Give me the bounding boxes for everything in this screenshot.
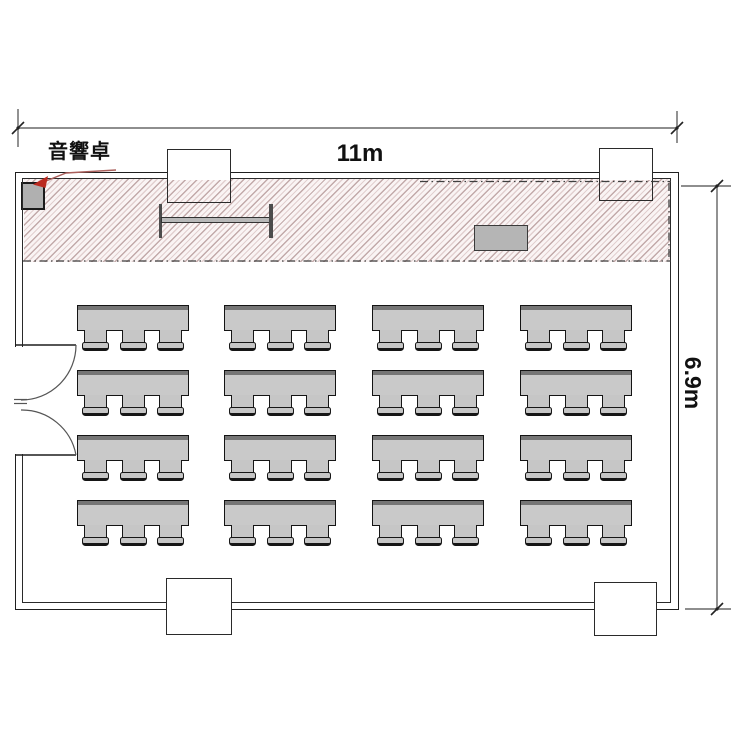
chair-seat — [602, 395, 625, 408]
chair-back — [600, 472, 627, 481]
seating-table — [372, 370, 484, 416]
chair — [157, 525, 184, 546]
chair-back — [120, 342, 147, 351]
chair — [304, 525, 331, 546]
chair-back — [304, 472, 331, 481]
chair — [600, 460, 627, 481]
chair-back — [377, 537, 404, 546]
chair — [82, 395, 109, 416]
chair-seat — [159, 460, 182, 473]
table-top — [224, 500, 336, 526]
table-top — [520, 435, 632, 461]
chair — [157, 330, 184, 351]
chair — [377, 525, 404, 546]
chair-seat — [122, 460, 145, 473]
chair-back — [525, 537, 552, 546]
chair-seat — [379, 525, 402, 538]
table-edge — [521, 371, 631, 375]
chair-back — [304, 342, 331, 351]
table-edge — [521, 501, 631, 505]
chair-seat — [417, 395, 440, 408]
chair-seat — [84, 525, 107, 538]
chair — [267, 395, 294, 416]
chair-back — [120, 472, 147, 481]
chair-seat — [269, 460, 292, 473]
chair — [267, 330, 294, 351]
seating-table — [224, 305, 336, 351]
chair-seat — [565, 395, 588, 408]
chair-seat — [231, 525, 254, 538]
chair-seat — [527, 330, 550, 343]
chair-seat — [454, 460, 477, 473]
chair-back — [157, 342, 184, 351]
chair-seat — [84, 330, 107, 343]
chair-seat — [527, 460, 550, 473]
chair-seat — [231, 460, 254, 473]
chair — [377, 395, 404, 416]
chair — [452, 525, 479, 546]
chair-back — [82, 407, 109, 416]
chair-back — [415, 472, 442, 481]
chair-seat — [454, 395, 477, 408]
seating-table — [224, 370, 336, 416]
table-edge — [373, 306, 483, 310]
chair-back — [229, 342, 256, 351]
chair — [304, 395, 331, 416]
chair-seat — [565, 460, 588, 473]
chair-seat — [417, 525, 440, 538]
chair-back — [525, 342, 552, 351]
chair — [157, 395, 184, 416]
chair — [525, 330, 552, 351]
chair-seat — [122, 395, 145, 408]
seating-table — [224, 435, 336, 481]
table-top — [224, 370, 336, 396]
chair — [452, 330, 479, 351]
chair-back — [525, 407, 552, 416]
chair-seat — [159, 525, 182, 538]
chair-back — [377, 472, 404, 481]
chair — [82, 330, 109, 351]
chair — [452, 395, 479, 416]
table-top — [77, 305, 189, 331]
table-top — [372, 500, 484, 526]
chair — [415, 330, 442, 351]
chair — [120, 395, 147, 416]
audio-console-label: 音響卓 — [48, 135, 111, 164]
chair-back — [157, 537, 184, 546]
seating-table — [520, 500, 632, 546]
chair — [120, 330, 147, 351]
seating-table — [224, 500, 336, 546]
seating-table — [372, 305, 484, 351]
table-top — [520, 305, 632, 331]
chair-seat — [379, 330, 402, 343]
table-top — [372, 435, 484, 461]
chair-seat — [306, 330, 329, 343]
chair-seat — [565, 525, 588, 538]
table-edge — [521, 306, 631, 310]
chair-seat — [565, 330, 588, 343]
chair — [563, 330, 590, 351]
chair-back — [267, 472, 294, 481]
seating-table — [372, 435, 484, 481]
chair-seat — [602, 330, 625, 343]
table-edge — [225, 501, 335, 505]
seating-table — [520, 435, 632, 481]
chair-seat — [122, 330, 145, 343]
table-top — [372, 305, 484, 331]
chair-seat — [379, 460, 402, 473]
chair-back — [82, 472, 109, 481]
floor-plan: 音響卓 11m 6.9m — [0, 0, 750, 750]
chair-back — [304, 407, 331, 416]
seating-grid — [0, 0, 750, 750]
seating-table — [520, 305, 632, 351]
chair-back — [229, 407, 256, 416]
chair-seat — [602, 460, 625, 473]
chair-seat — [159, 395, 182, 408]
chair-seat — [417, 460, 440, 473]
chair-back — [82, 342, 109, 351]
seating-table — [520, 370, 632, 416]
chair-seat — [379, 395, 402, 408]
chair-back — [563, 407, 590, 416]
table-top — [520, 370, 632, 396]
chair-back — [267, 342, 294, 351]
chair — [415, 395, 442, 416]
chair — [600, 395, 627, 416]
chair — [377, 330, 404, 351]
table-edge — [225, 371, 335, 375]
chair-back — [452, 472, 479, 481]
chair-back — [452, 342, 479, 351]
table-edge — [78, 306, 188, 310]
chair-back — [157, 407, 184, 416]
table-top — [77, 370, 189, 396]
chair-back — [415, 537, 442, 546]
chair-seat — [84, 395, 107, 408]
chair — [267, 525, 294, 546]
table-top — [224, 305, 336, 331]
chair-seat — [454, 330, 477, 343]
table-edge — [373, 371, 483, 375]
chair-seat — [306, 395, 329, 408]
table-top — [224, 435, 336, 461]
chair — [157, 460, 184, 481]
table-edge — [521, 436, 631, 440]
chair-back — [563, 342, 590, 351]
chair — [229, 330, 256, 351]
chair-back — [229, 472, 256, 481]
chair — [304, 330, 331, 351]
chair — [120, 525, 147, 546]
chair-back — [82, 537, 109, 546]
chair-seat — [269, 330, 292, 343]
chair-seat — [454, 525, 477, 538]
chair — [82, 460, 109, 481]
chair-seat — [306, 460, 329, 473]
chair — [452, 460, 479, 481]
chair — [563, 460, 590, 481]
chair — [563, 525, 590, 546]
seating-table — [77, 305, 189, 351]
table-top — [77, 500, 189, 526]
width-dimension-label: 11m — [320, 140, 400, 168]
chair-seat — [269, 395, 292, 408]
chair — [525, 395, 552, 416]
chair-seat — [84, 460, 107, 473]
chair — [415, 460, 442, 481]
chair-seat — [306, 525, 329, 538]
seating-table — [77, 435, 189, 481]
chair-seat — [527, 525, 550, 538]
table-edge — [78, 501, 188, 505]
chair-seat — [122, 525, 145, 538]
table-top — [372, 370, 484, 396]
chair — [377, 460, 404, 481]
seating-table — [77, 500, 189, 546]
chair-back — [377, 342, 404, 351]
height-dimension-label: 6.9m — [680, 354, 706, 412]
chair — [82, 525, 109, 546]
table-top — [520, 500, 632, 526]
chair-seat — [602, 525, 625, 538]
table-edge — [78, 436, 188, 440]
chair-seat — [417, 330, 440, 343]
chair-seat — [527, 395, 550, 408]
chair — [267, 460, 294, 481]
seating-table — [77, 370, 189, 416]
chair — [229, 525, 256, 546]
chair-back — [120, 407, 147, 416]
chair — [563, 395, 590, 416]
chair-back — [525, 472, 552, 481]
chair — [525, 525, 552, 546]
chair-back — [304, 537, 331, 546]
chair-back — [563, 472, 590, 481]
chair-back — [415, 342, 442, 351]
table-edge — [78, 371, 188, 375]
chair — [415, 525, 442, 546]
chair-back — [267, 537, 294, 546]
chair-back — [157, 472, 184, 481]
chair — [304, 460, 331, 481]
chair — [600, 525, 627, 546]
table-edge — [373, 501, 483, 505]
chair-back — [452, 407, 479, 416]
chair-back — [267, 407, 294, 416]
table-edge — [225, 436, 335, 440]
chair-back — [600, 537, 627, 546]
chair-back — [600, 407, 627, 416]
chair-back — [452, 537, 479, 546]
table-edge — [373, 436, 483, 440]
chair — [120, 460, 147, 481]
chair-back — [120, 537, 147, 546]
chair — [525, 460, 552, 481]
chair-back — [377, 407, 404, 416]
chair — [229, 460, 256, 481]
chair-seat — [269, 525, 292, 538]
chair-seat — [231, 330, 254, 343]
chair-back — [229, 537, 256, 546]
table-edge — [225, 306, 335, 310]
chair-seat — [159, 330, 182, 343]
chair-back — [563, 537, 590, 546]
chair-back — [600, 342, 627, 351]
table-top — [77, 435, 189, 461]
chair-back — [415, 407, 442, 416]
chair — [600, 330, 627, 351]
chair-seat — [231, 395, 254, 408]
seating-table — [372, 500, 484, 546]
chair — [229, 395, 256, 416]
